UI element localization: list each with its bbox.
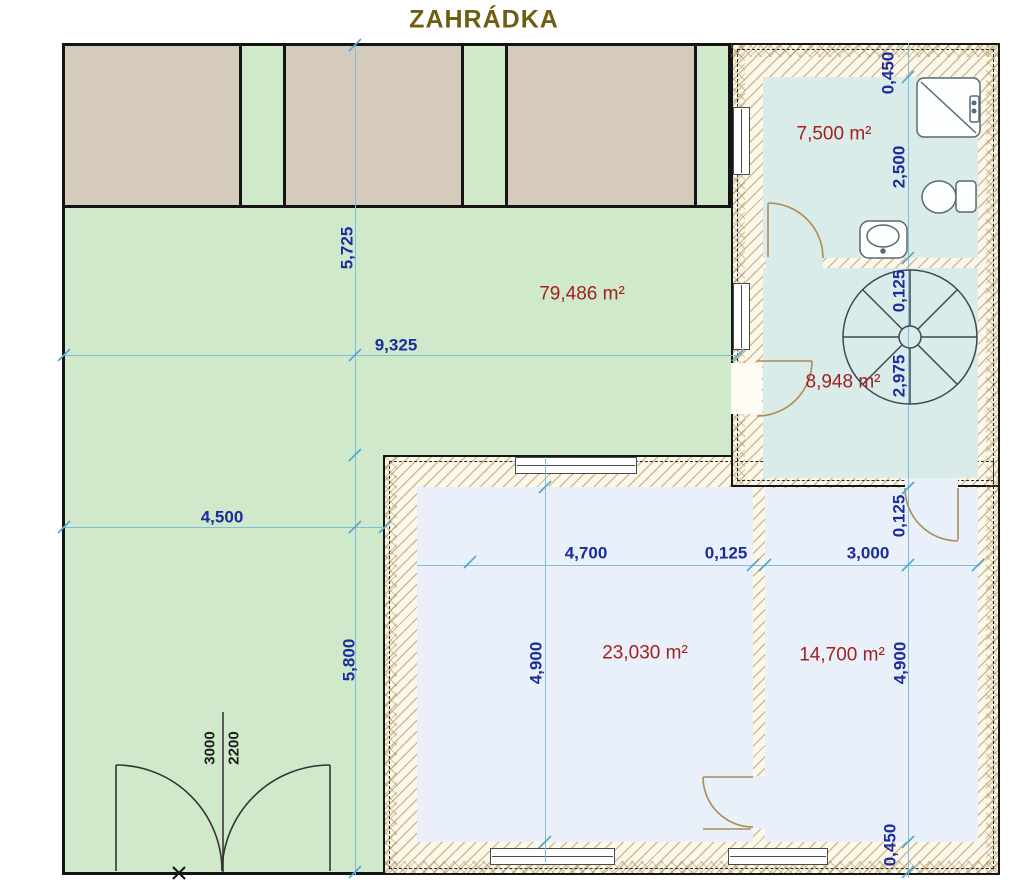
small-room-area-label: 14,700 m² xyxy=(799,646,885,665)
floor-plan-canvas: ZAHRÁDKA xyxy=(0,0,1024,889)
dim-bathroom-height: 2,500 xyxy=(891,146,908,189)
dim-line-rooms-width xyxy=(417,565,978,566)
garden-area-label: 79,486 m² xyxy=(539,285,625,304)
dim-garden-top-height: 5,725 xyxy=(339,227,356,270)
dim-small-room-width: 3,000 xyxy=(847,545,890,562)
window-west-upper xyxy=(733,107,750,175)
dim-large-room-width: 4,700 xyxy=(565,545,608,562)
dim-garden-bottom-height: 5,800 xyxy=(341,639,358,682)
large-room-area-label: 23,030 m² xyxy=(602,644,688,663)
dim-line-garden-width xyxy=(62,355,740,356)
gate-width-label: 3000 xyxy=(203,731,218,764)
terrace-slab-1 xyxy=(62,43,242,208)
window-south-large-room xyxy=(490,848,615,865)
dim-large-room-height: 4,900 xyxy=(528,642,545,685)
gate-height-label: 2200 xyxy=(227,731,242,764)
partition-door-opening xyxy=(753,776,765,829)
window-south-small-room xyxy=(728,848,828,865)
dim-wall-top: 0,450 xyxy=(880,52,897,95)
bathroom-area-label: 7,500 m² xyxy=(797,125,872,144)
dim-line-garden-left xyxy=(62,527,385,528)
bathroom-floor xyxy=(763,77,978,258)
staircase-door-opening xyxy=(731,363,762,414)
terrace-slab-3 xyxy=(505,43,697,208)
window-west-lower xyxy=(733,283,750,350)
dim-staircase-height: 2,975 xyxy=(891,355,908,398)
large-room-floor xyxy=(417,487,753,842)
dim-line-garden-vertical xyxy=(355,43,356,875)
dim-garden-left-width: 4,500 xyxy=(201,509,244,526)
gate-center-line xyxy=(222,712,224,872)
page-title: ZAHRÁDKA xyxy=(409,6,559,35)
bathroom-door-opening xyxy=(766,256,823,268)
dim-wall-bottom: 0,450 xyxy=(882,824,899,867)
staircase-area-label: 8,948 m² xyxy=(806,373,881,392)
dim-bathroom-wall: 0,125 xyxy=(891,270,908,313)
terrace-slab-2 xyxy=(283,43,464,208)
dim-small-room-height: 4,900 xyxy=(892,642,909,685)
window-north-large-room xyxy=(515,457,637,474)
dim-partition-thickness: 0,125 xyxy=(705,545,748,562)
small-room-door-opening xyxy=(905,478,958,490)
dim-small-room-offset: 0,125 xyxy=(891,495,908,538)
dim-garden-width: 9,325 xyxy=(375,337,418,354)
